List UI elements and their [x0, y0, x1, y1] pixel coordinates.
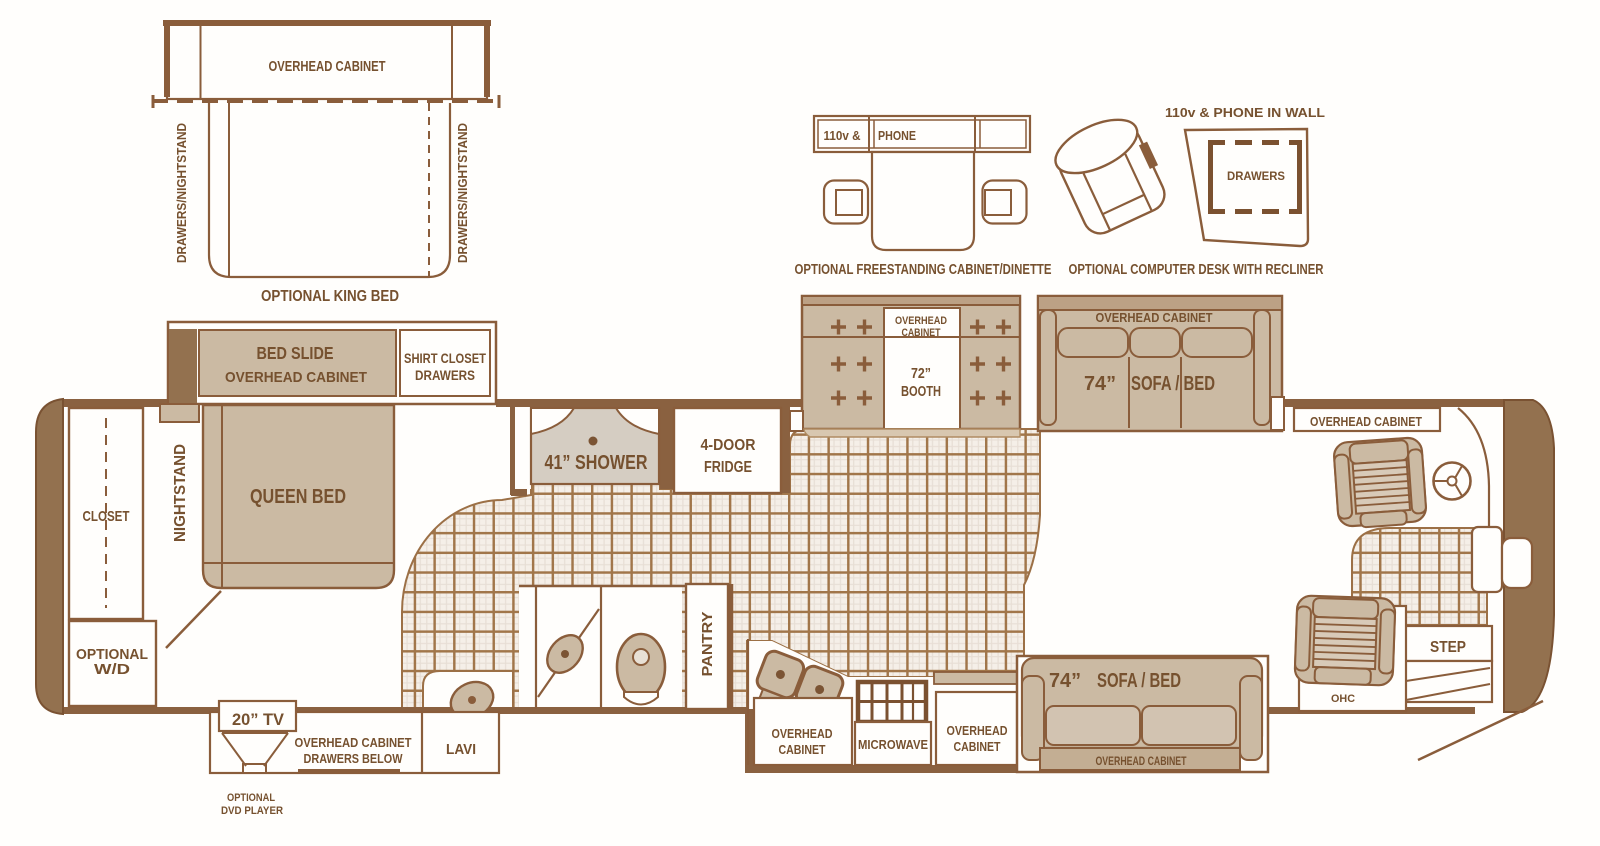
- svg-text:NIGHTSTAND: NIGHTSTAND: [172, 444, 189, 542]
- svg-text:OVERHEAD: OVERHEAD: [947, 724, 1008, 738]
- svg-text:DRAWERS BELOW: DRAWERS BELOW: [304, 751, 404, 766]
- svg-text:CABINET: CABINET: [902, 327, 941, 339]
- svg-text:OPTIONAL FREESTANDING CABINET/: OPTIONAL FREESTANDING CABINET/DINETTE: [795, 262, 1052, 278]
- svg-text:QUEEN BED: QUEEN BED: [250, 485, 346, 508]
- svg-text:OVERHEAD: OVERHEAD: [895, 315, 947, 327]
- svg-text:OPTIONAL COMPUTER DESK WITH RE: OPTIONAL COMPUTER DESK WITH RECLINER: [1069, 262, 1324, 278]
- svg-text:OVERHEAD CABINET: OVERHEAD CABINET: [225, 369, 367, 386]
- svg-text:DVD PLAYER: DVD PLAYER: [221, 805, 283, 817]
- svg-text:OVERHEAD CABINET: OVERHEAD CABINET: [269, 59, 386, 75]
- svg-text:110v &: 110v &: [824, 129, 861, 143]
- svg-text:STEP: STEP: [1430, 639, 1466, 656]
- svg-text:CABINET: CABINET: [954, 740, 1001, 754]
- svg-text:41” SHOWER: 41” SHOWER: [545, 452, 648, 474]
- svg-text:74”: 74”: [1084, 373, 1116, 395]
- svg-text:OVERHEAD CABINET: OVERHEAD CABINET: [1096, 754, 1187, 768]
- svg-text:DRAWERS/NIGHTSTAND: DRAWERS/NIGHTSTAND: [174, 123, 189, 263]
- svg-text:110v & PHONE IN WALL: 110v & PHONE IN WALL: [1165, 106, 1325, 120]
- svg-text:CABINET: CABINET: [779, 743, 826, 757]
- svg-text:DRAWERS: DRAWERS: [1227, 169, 1285, 183]
- svg-text:OPTIONAL KING BED: OPTIONAL KING BED: [261, 288, 399, 305]
- svg-text:DRAWERS: DRAWERS: [415, 368, 475, 383]
- svg-text:OVERHEAD CABINET: OVERHEAD CABINET: [1310, 414, 1422, 429]
- svg-text:BED SLIDE: BED SLIDE: [257, 343, 334, 363]
- svg-text:BOOTH: BOOTH: [901, 384, 941, 400]
- svg-text:OHC: OHC: [1331, 693, 1355, 705]
- svg-text:20” TV: 20” TV: [232, 710, 285, 729]
- svg-text:OVERHEAD CABINET: OVERHEAD CABINET: [1096, 311, 1213, 325]
- svg-text:OVERHEAD CABINET: OVERHEAD CABINET: [295, 735, 412, 750]
- svg-text:DRAWERS/NIGHTSTAND: DRAWERS/NIGHTSTAND: [455, 123, 470, 263]
- svg-text:PANTRY: PANTRY: [699, 612, 716, 677]
- svg-text:LAVI: LAVI: [446, 741, 476, 758]
- svg-text:OVERHEAD: OVERHEAD: [772, 727, 833, 741]
- svg-text:OPTIONAL: OPTIONAL: [76, 647, 148, 663]
- svg-text:72”: 72”: [911, 366, 931, 382]
- svg-text:SOFA / BED: SOFA / BED: [1131, 373, 1215, 395]
- svg-text:SOFA / BED: SOFA / BED: [1097, 670, 1181, 692]
- svg-text:FRIDGE: FRIDGE: [704, 459, 752, 476]
- svg-text:MICROWAVE: MICROWAVE: [858, 738, 928, 752]
- svg-text:W/D: W/D: [94, 662, 130, 678]
- svg-text:OPTIONAL: OPTIONAL: [227, 792, 275, 804]
- svg-text:74”: 74”: [1049, 670, 1081, 692]
- svg-text:PHONE: PHONE: [878, 129, 916, 143]
- svg-text:4-DOOR: 4-DOOR: [701, 437, 756, 454]
- svg-text:CLOSET: CLOSET: [83, 508, 130, 525]
- svg-text:SHIRT CLOSET: SHIRT CLOSET: [404, 351, 487, 366]
